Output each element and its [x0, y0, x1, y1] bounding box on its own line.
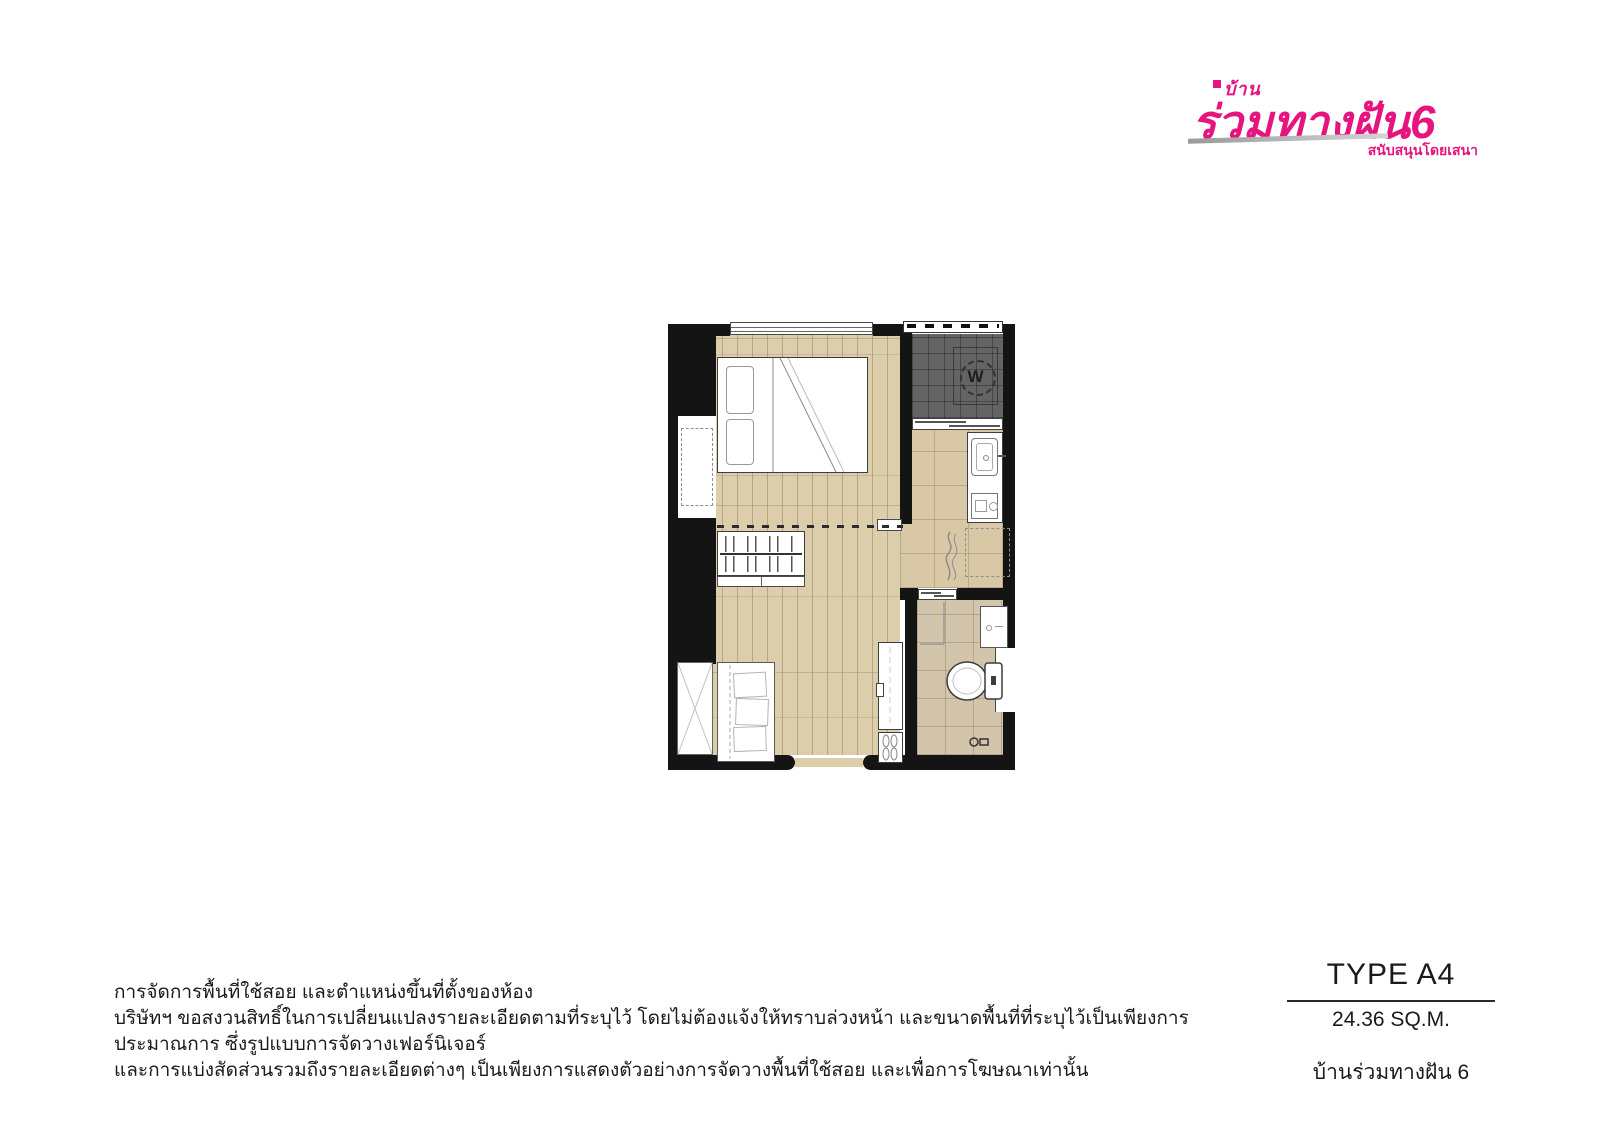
- wall-left-mid-block: [668, 518, 716, 664]
- faucet-icon: [998, 455, 1006, 457]
- tall-cabinet: [878, 642, 903, 730]
- sink-drain-icon: [983, 455, 989, 461]
- wall-kitchen-bath-right: [957, 588, 1015, 600]
- washer-label: W: [954, 367, 997, 387]
- logo-brand-subtitle: สนับสนุนโดยเสนา: [1330, 140, 1478, 162]
- project-logo: บ้าน ร่วมทางฝัน6 สนับสนุนโดยเสนา: [1180, 60, 1480, 170]
- unit-type-block: TYPE A4 24.36 SQ.M. บ้านร่วมทางฝัน 6: [1276, 958, 1506, 1089]
- bed-sheet-lines: [718, 358, 867, 472]
- wardrobe-rod: [720, 553, 802, 555]
- cabinet-sketch: [879, 643, 902, 729]
- brochure-page: บ้าน ร่วมทางฝัน6 สนับสนุนโดยเสนา: [0, 0, 1599, 1131]
- disclaimer-line: บริษัทฯ ขอสงวนสิทธิ์ในการเปลี่ยนแปลงรายล…: [114, 1006, 1214, 1058]
- bathroom-vanity: [980, 606, 1008, 648]
- kitchen-sink: [971, 438, 998, 476]
- wardrobe-drawer: [717, 576, 805, 587]
- vanity-tap-icon: [986, 625, 992, 631]
- ac-ledge-niche: [678, 416, 716, 518]
- sofa: [717, 662, 775, 762]
- floor-drain-icon: [968, 736, 990, 748]
- toilet-icon: [943, 658, 1005, 704]
- ac-unit-dashed-outline: [681, 428, 713, 506]
- bed: [717, 357, 868, 473]
- refrigerator-dashed-outline: [965, 528, 1010, 577]
- unit-type-divider: [1287, 1000, 1495, 1002]
- corner-window-x: [677, 662, 713, 755]
- unit-project-name: บ้านร่วมทางฝัน 6: [1276, 1056, 1506, 1089]
- floor-plan: W: [650, 310, 1015, 772]
- wall-bathroom-left: [905, 600, 917, 770]
- burner-icon: [975, 500, 987, 512]
- burner-icon: [989, 502, 998, 511]
- sofa-cushion-sketch: [718, 663, 774, 761]
- disclaimer-text: การจัดการพื้นที่ใช้สอย และตำแหน่งขึ้นที่…: [114, 980, 1214, 1084]
- unit-type-title: TYPE A4: [1276, 958, 1506, 992]
- shoe-cabinet: [878, 732, 903, 763]
- washing-machine: W: [953, 347, 998, 405]
- shower-partition-lines: [920, 602, 960, 652]
- x-marks: [678, 663, 712, 754]
- wardrobe: [717, 531, 805, 576]
- disclaimer-line: การจัดการพื้นที่ใช้สอย และตำแหน่งขึ้นที่…: [114, 980, 1214, 1006]
- kitchen-counter: [967, 432, 1003, 523]
- wall-kitchen-bath-left: [900, 588, 918, 600]
- bedroom-window: [730, 322, 873, 335]
- hanger-icons: [725, 556, 797, 572]
- entrance-doorway: [795, 758, 863, 767]
- disclaimer-line: และการแบ่งสัดส่วนรวมถึงรายละเอียดต่างๆ เ…: [114, 1058, 1214, 1084]
- chair-sketch: [936, 530, 970, 582]
- unit-area-label: 24.36 SQ.M.: [1276, 1008, 1506, 1032]
- balcony-sliding-door: [912, 418, 1003, 430]
- hanger-icons: [725, 536, 797, 552]
- bathroom-sliding-door: [918, 589, 957, 600]
- stove: [971, 493, 998, 519]
- shoes-icon: [879, 733, 902, 762]
- balcony-railing: [903, 321, 1003, 333]
- overhead-dashed-track: [717, 525, 903, 528]
- wall-balcony-kitchen-stub: [900, 418, 912, 430]
